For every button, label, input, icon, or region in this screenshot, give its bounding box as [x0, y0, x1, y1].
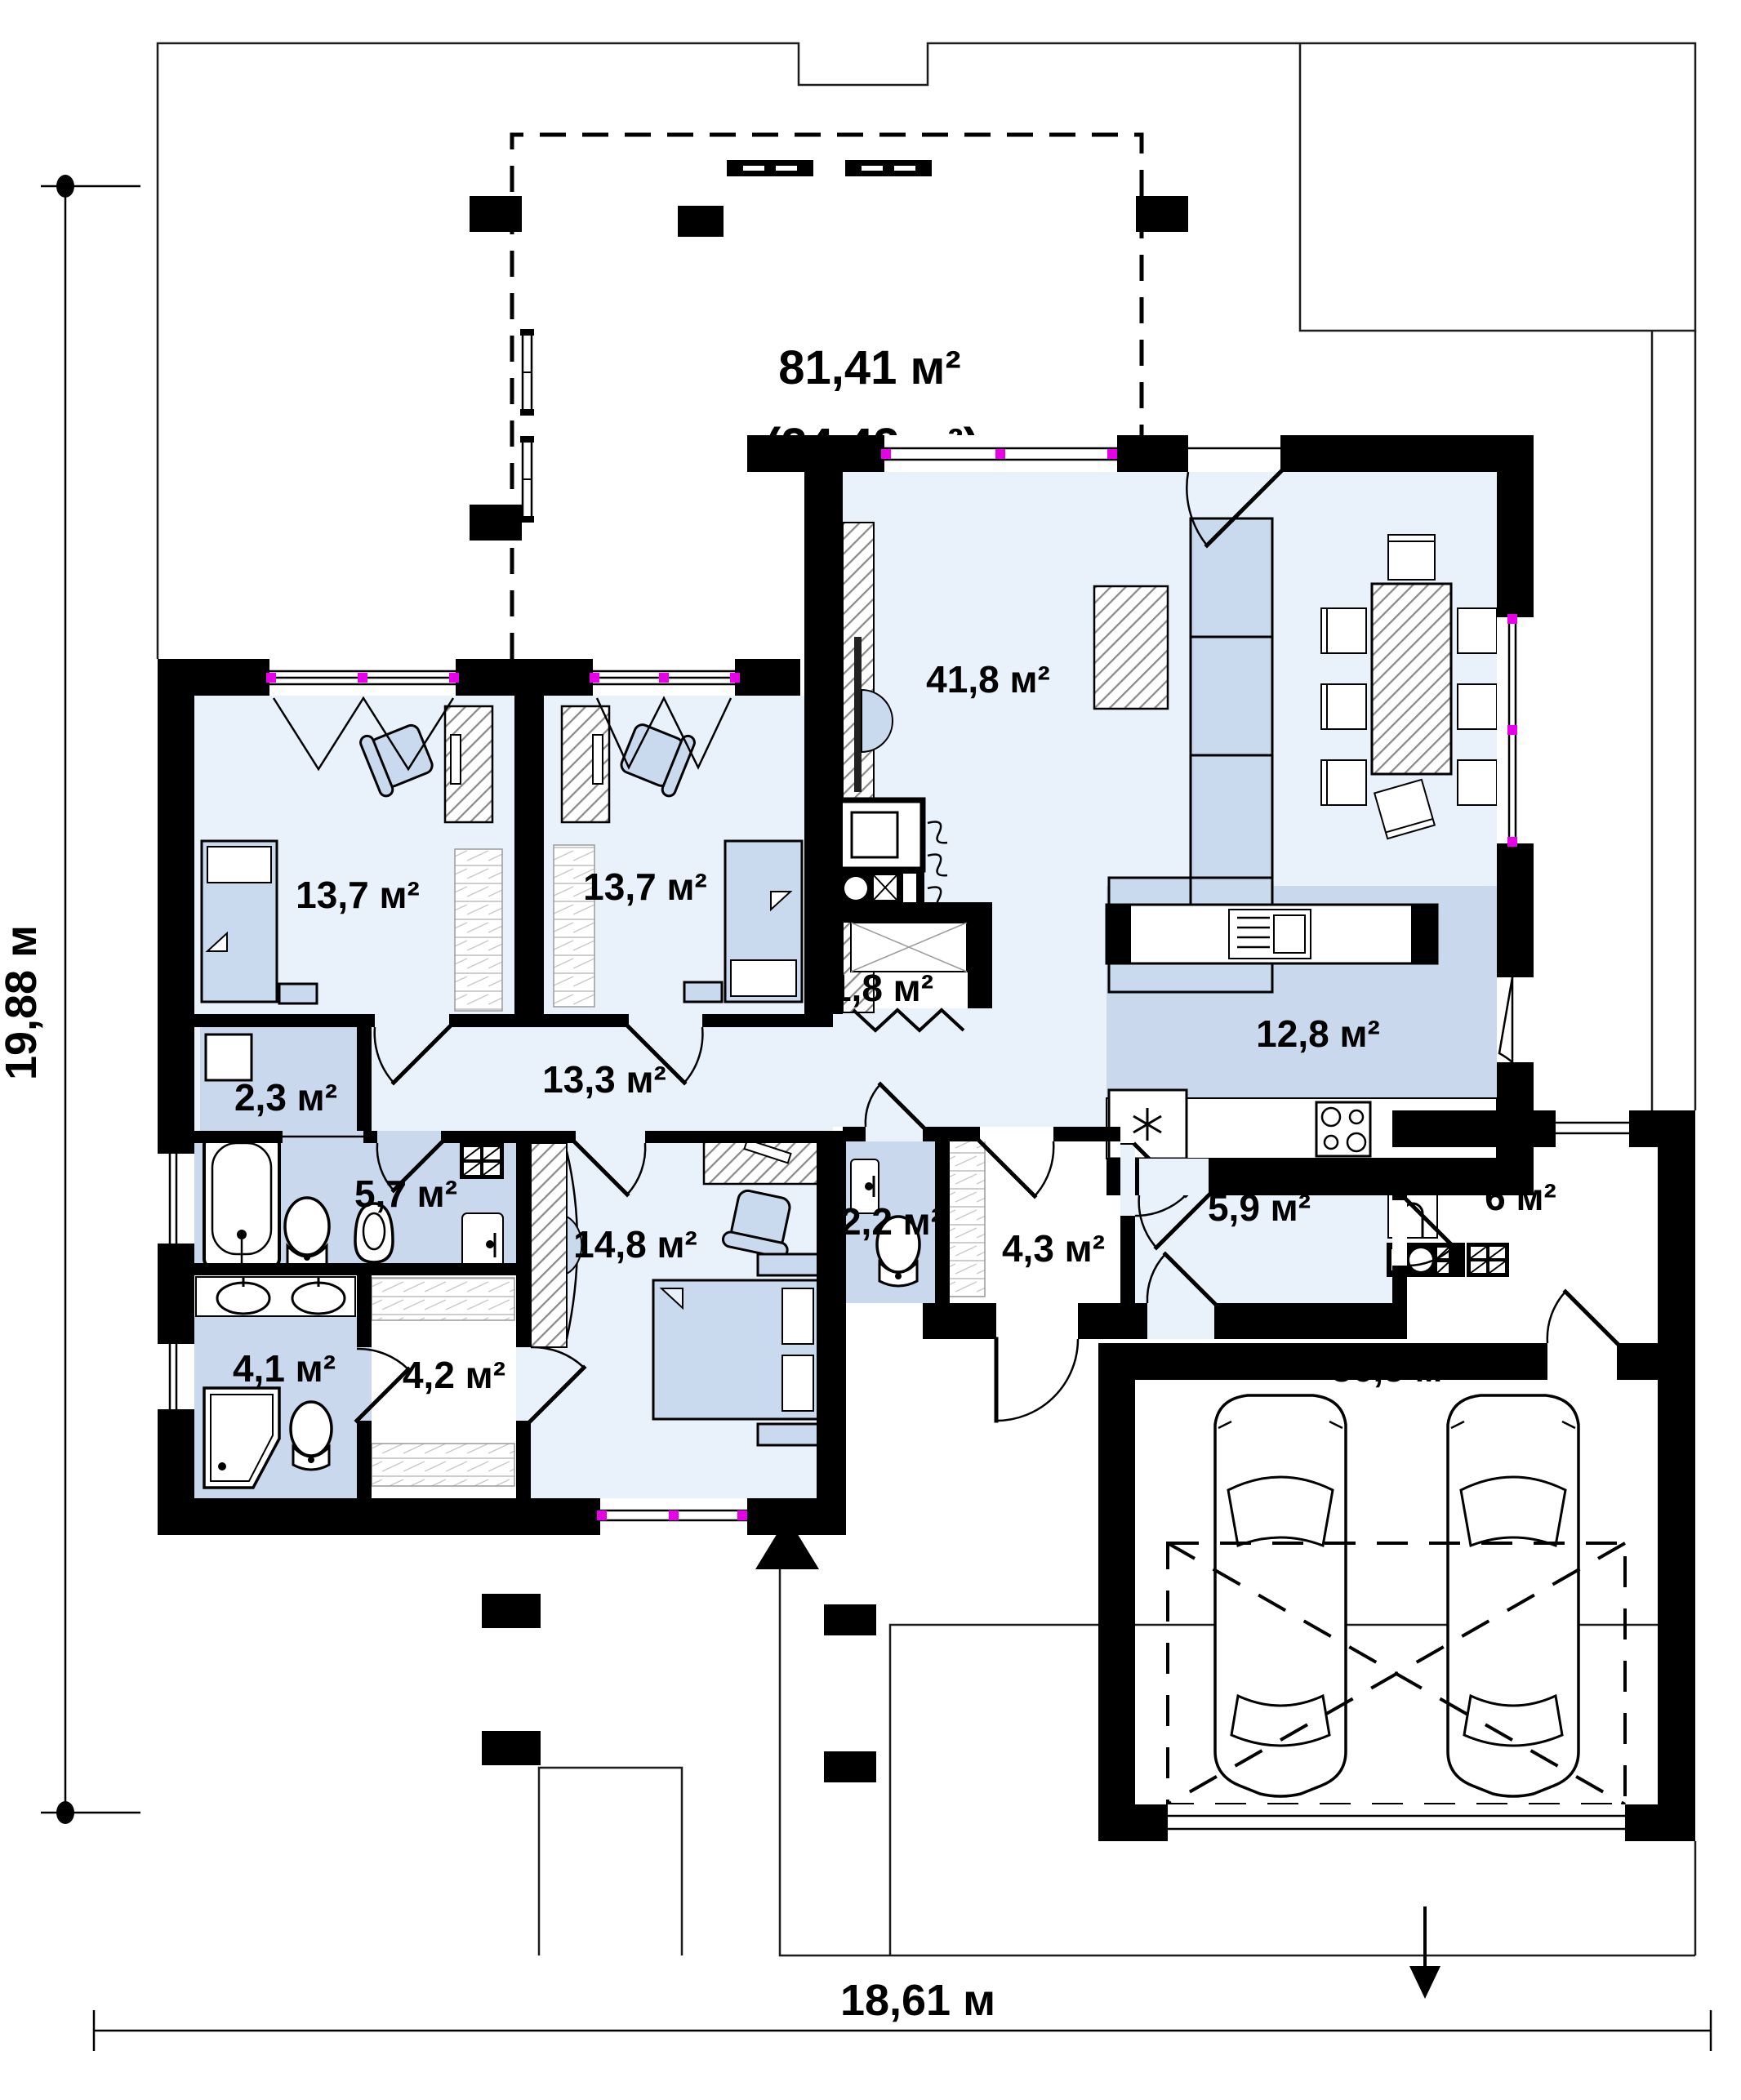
porch-post	[824, 1604, 876, 1635]
car-icon	[1215, 1395, 1346, 1796]
terrace-column	[678, 206, 724, 237]
dimension-bottom: 18,61 м	[94, 1976, 1711, 2051]
dimension-width-label: 18,61 м	[840, 1976, 995, 2025]
room-label-living-room: 41,8 м²	[926, 658, 1050, 701]
porch-post	[824, 1751, 876, 1782]
coffee-table	[1094, 586, 1168, 709]
car-icon	[1448, 1395, 1578, 1796]
room-label-entry: 4,3 м²	[1002, 1227, 1105, 1270]
room-label-shower-room: 4,1 м²	[233, 1347, 336, 1390]
double-bed	[653, 1254, 821, 1445]
room-label-hallway: 13,3 м²	[542, 1058, 666, 1101]
terrace-column	[1136, 196, 1188, 232]
toilet-icon	[285, 1198, 329, 1269]
garage-door	[1168, 1804, 1625, 1841]
washing-machine-icon	[206, 1034, 252, 1080]
room-label-pantry: 1,8 м²	[830, 967, 933, 1009]
nightstand	[758, 1254, 821, 1275]
terrace-column	[470, 196, 522, 232]
kitchen-island	[1106, 905, 1437, 963]
wardrobe-unit	[455, 849, 502, 1011]
nightstand	[758, 1424, 821, 1445]
window	[1556, 1110, 1629, 1147]
window	[597, 1498, 747, 1535]
room-label-bathroom: 5,7 м²	[354, 1172, 457, 1215]
porch-post	[482, 1594, 541, 1628]
bathtub	[204, 1137, 279, 1267]
doorway	[283, 1131, 363, 1143]
glass-screen	[520, 436, 534, 523]
pantry-shelf	[851, 923, 967, 972]
floor-plan-page: 81,41 м² (24,42 м²)	[0, 0, 1741, 2100]
wardrobe-unit	[372, 1278, 514, 1320]
room-label-kitchen: 12,8 м²	[1256, 1012, 1380, 1055]
window	[158, 1154, 194, 1244]
window	[158, 1344, 194, 1409]
nightstand	[279, 984, 317, 1003]
driveway-arrow-icon	[1409, 1906, 1440, 1999]
stove-icon	[1316, 1102, 1370, 1156]
porch-post	[482, 1731, 541, 1765]
room-label-bedroom-1: 13,7 м²	[296, 874, 420, 916]
glass-screen	[520, 329, 534, 416]
room-label-laundry: 2,3 м²	[234, 1076, 337, 1119]
passage-floor	[833, 1008, 1106, 1127]
window	[1497, 614, 1534, 847]
wardrobe-unit	[372, 1444, 514, 1486]
oven-column	[833, 870, 924, 907]
window	[1497, 977, 1534, 1062]
dining-table	[1372, 584, 1451, 774]
pergola-beam	[727, 160, 813, 176]
room-label-utility: 6 м²	[1485, 1176, 1556, 1218]
desk-monitor	[593, 735, 603, 784]
front-door	[996, 1303, 1078, 1421]
room-label-wardrobe: 4,2 м²	[403, 1354, 505, 1396]
dimension-left: 19,88 м	[0, 175, 140, 1824]
room-label-garage: 36,5 м²	[1331, 1347, 1455, 1390]
room-label-wc: 2,2 м²	[840, 1200, 943, 1243]
nightstand	[684, 982, 722, 1002]
door	[1547, 1292, 1617, 1380]
floor-plan-drawing: 81,41 м² (24,42 м²)	[0, 0, 1741, 2100]
room-label-bedroom-2: 13,7 м²	[583, 865, 707, 908]
room-label-master-bedroom: 14,8 м²	[573, 1223, 697, 1266]
room-label-hall: 5,9 м²	[1208, 1186, 1311, 1229]
desk-monitor	[451, 735, 461, 784]
vanity-sinks	[196, 1277, 355, 1316]
terrace-column	[470, 505, 522, 541]
toilet-icon	[291, 1402, 332, 1470]
terrace-area-label: 81,41 м²	[778, 341, 960, 394]
dimension-height-label: 19,88 м	[0, 925, 46, 1080]
vent-shaft	[460, 1143, 504, 1179]
window	[881, 435, 1117, 472]
pergola-beam	[845, 160, 932, 176]
utility-grid	[1467, 1243, 1509, 1277]
